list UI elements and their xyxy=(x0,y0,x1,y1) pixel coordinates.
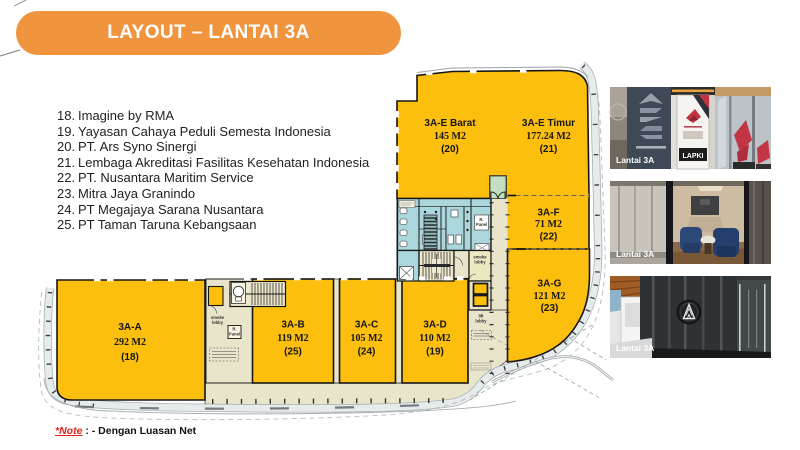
svg-text:105 M2: 105 M2 xyxy=(351,333,383,344)
svg-text:292 M2: 292 M2 xyxy=(114,337,146,348)
svg-text:Lantai 3A: Lantai 3A xyxy=(616,249,654,259)
svg-text:(22): (22) xyxy=(540,232,558,243)
svg-text:145 M2: 145 M2 xyxy=(434,131,466,142)
svg-text:3A-E Timur: 3A-E Timur xyxy=(522,118,575,129)
svg-text:3A-E Barat: 3A-E Barat xyxy=(424,118,476,129)
svg-text:Lantai 3A: Lantai 3A xyxy=(616,155,654,165)
svg-text:lobby: lobby xyxy=(474,260,486,265)
svg-text:(24): (24) xyxy=(358,347,376,358)
svg-text:3A-D: 3A-D xyxy=(423,320,446,331)
svg-text:3A-F: 3A-F xyxy=(537,208,559,219)
svg-text:3A-G: 3A-G xyxy=(538,279,562,290)
svg-text:Lantai 3A: Lantai 3A xyxy=(616,343,654,353)
svg-text:(20): (20) xyxy=(441,144,459,155)
svg-text:3A-B: 3A-B xyxy=(281,320,304,331)
svg-text:(23): (23) xyxy=(541,303,559,314)
svg-text:3A-A: 3A-A xyxy=(118,322,141,333)
svg-text:(21): (21) xyxy=(540,144,558,155)
svg-text:3A-C: 3A-C xyxy=(355,320,378,331)
svg-text:71 M2: 71 M2 xyxy=(535,219,562,230)
svg-text:177.24 M2: 177.24 M2 xyxy=(526,131,570,142)
svg-text:121 M2: 121 M2 xyxy=(534,291,566,302)
svg-text:119 M2: 119 M2 xyxy=(277,333,308,344)
svg-text:(18): (18) xyxy=(121,352,139,363)
svg-text:lobby: lobby xyxy=(475,319,487,324)
svg-text:Panel: Panel xyxy=(229,332,240,337)
svg-text:110 M2: 110 M2 xyxy=(419,333,450,344)
svg-text:(25): (25) xyxy=(284,347,302,358)
svg-text:Panel: Panel xyxy=(476,222,487,227)
svg-text:lobby: lobby xyxy=(212,320,224,325)
svg-text:LAPKI: LAPKI xyxy=(683,153,704,160)
svg-text:(19): (19) xyxy=(426,347,444,358)
